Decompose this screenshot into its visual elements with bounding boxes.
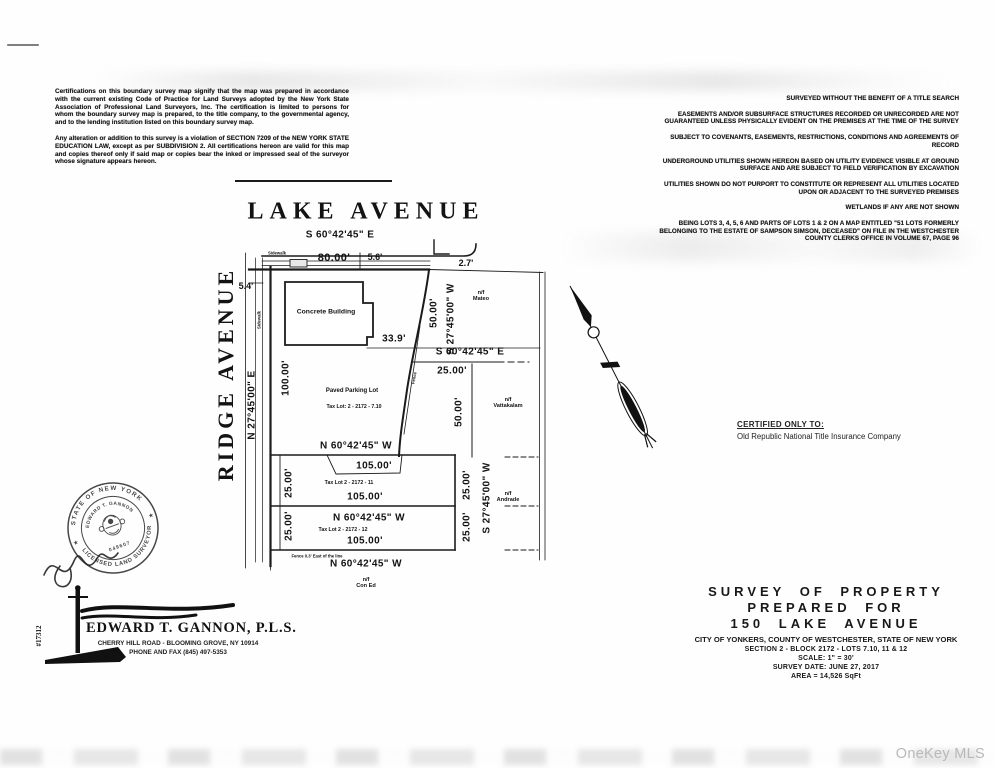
surveyor-signature — [44, 553, 118, 587]
seal-emblem-icon — [96, 511, 128, 539]
taxlot-12-label: Tax Lot 2 - 2172 - 12 — [319, 527, 368, 533]
surveyor-seal: STATE OF NEW YORK LICENSED LAND SURVEYOR… — [44, 470, 171, 586]
paved-parking-label: Paved Parking Lot — [326, 388, 378, 394]
surveyor-name: EDWARD T. GANNON, P.L.S. — [86, 620, 297, 637]
certification-paragraph-2: Any alteration or addition to this surve… — [55, 135, 349, 166]
north-arrow-icon — [563, 282, 660, 451]
seal-top-text: STATE OF NEW YORK — [61, 474, 145, 528]
dim-25-left-row2: 25.00' — [284, 511, 295, 541]
bearing-nw-row1: N 60°42'45" W — [320, 441, 392, 452]
sidewalk-label-left: Sidewalk — [257, 311, 262, 329]
dim-105-c: 105.00' — [347, 536, 383, 547]
nf-vattakalam-label: n/f Vattakalam — [493, 397, 522, 409]
dim-50-mateo: 50.00' — [429, 298, 440, 328]
north-boundary-extension — [429, 270, 543, 273]
seal-star-right-icon: ★ — [147, 512, 154, 520]
dim-25-right-row2: 25.00' — [462, 512, 473, 542]
job-number: #17312 — [35, 626, 43, 647]
certified-to-name: Old Republic National Title Insurance Co… — [737, 432, 967, 441]
dim-5-4: 5.4' — [239, 281, 254, 291]
title-line-2: PREPARED FOR — [686, 600, 966, 616]
sidewalk-label-top: Sidewalk — [268, 251, 286, 256]
bearing-se-mid: S 60°42'45" E — [436, 347, 505, 358]
onekey-mls-watermark: OneKey MLS — [896, 746, 985, 762]
survey-sheet: STATE OF NEW YORK LICENSED LAND SURVEYOR… — [0, 0, 995, 768]
title-line-6: SCALE: 1" = 30' — [686, 654, 966, 663]
bearing-sw-mateo: S 27°45'00" W — [446, 283, 457, 354]
nf-coned-name: Con Ed — [356, 583, 376, 589]
dim-50-vattakalam: 50.00' — [454, 397, 465, 427]
certified-to-heading: CERTIFIED ONLY TO: — [737, 420, 967, 429]
north-arrow-ring — [586, 325, 601, 340]
bearing-nw-row2: N 60°42'45" W — [333, 513, 405, 524]
title-line-8: AREA = 14,526 SqFt — [686, 672, 966, 681]
title-block: SURVEY OF PROPERTY PREPARED FOR 150 LAKE… — [686, 584, 966, 681]
title-line-4: CITY OF YONKERS, COUNTY OF WESTCHESTER, … — [686, 635, 966, 645]
certified-to-block: CERTIFIED ONLY TO: Old Republic National… — [737, 420, 967, 441]
title-line-3: 150 LAKE AVENUE — [686, 616, 966, 632]
dim-5-6: 5.6' — [368, 252, 383, 262]
north-arrow-tail-fill — [617, 384, 648, 434]
dim-100: 100.00' — [281, 360, 292, 396]
transit-banner-1 — [82, 605, 233, 611]
north-arrow-head — [567, 283, 596, 328]
bearing-sw-andrade: S 27°45'00" W — [482, 462, 493, 533]
corner-l-mark — [434, 240, 449, 254]
survey-notes-block: SURVEYED WITHOUT THE BENEFIT OF A TITLE … — [653, 95, 959, 251]
taxlot-710-label: Tax Lot: 2 - 2172 - 7.10 — [327, 404, 382, 410]
transit-knob — [75, 585, 81, 591]
bearing-ridge-frontage: N 27°45'00" E — [247, 370, 258, 439]
east-boundary — [399, 270, 429, 456]
bearing-nw-bottom: N 60°42'45" W — [330, 559, 402, 570]
note-being-lots: BEING LOTS 3, 4, 5, 6 AND PARTS OF LOTS … — [653, 220, 959, 243]
certification-paragraph-1: Certifications on this boundary survey m… — [55, 88, 349, 127]
nf-mateo-name: Mateo — [473, 296, 489, 302]
dim-105-b: 105.00' — [347, 492, 383, 503]
note-title-search: SURVEYED WITHOUT THE BENEFIT OF A TITLE … — [653, 95, 959, 103]
surveyor-phone: PHONE AND FAX (845) 497-5353 — [88, 649, 268, 656]
dim-25-left-row1: 25.00' — [284, 468, 295, 498]
note-wetlands: WETLANDS IF ANY ARE NOT SHOWN — [653, 204, 959, 212]
note-underground-utilities: UNDERGROUND UTILITIES SHOWN HEREON BASED… — [653, 158, 959, 173]
ridge-avenue-title: RIDGE AVENUE — [213, 267, 239, 481]
dim-105-a: 105.00' — [356, 461, 392, 472]
note-easements: EASEMENTS AND/OR SUBSURFACE STRUCTURES R… — [653, 111, 959, 126]
transit-post — [76, 589, 81, 653]
dim-25-right-row1: 25.00' — [462, 470, 473, 500]
note-utilities-shown: UTILITIES SHOWN DO NOT PURPORT TO CONSTI… — [653, 181, 959, 196]
title-line-5: SECTION 2 - BLOCK 2172 - LOTS 7.10, 11 &… — [686, 645, 966, 654]
nf-andrade-name: Andrade — [497, 497, 520, 503]
dim-25-mid: 25.00' — [437, 366, 467, 377]
note-covenants: SUBJECT TO COVENANTS, EASEMENTS, RESTRIC… — [653, 134, 959, 149]
seal-bottom-text: LICENSED LAND SURVEYOR — [80, 523, 163, 579]
lake-avenue-title: LAKE AVENUE — [248, 199, 485, 226]
surveyor-address: CHERRY HILL ROAD - BLOOMING GROVE, NY 10… — [88, 640, 268, 647]
title-line-7: SURVEY DATE: JUNE 27, 2017 — [686, 663, 966, 672]
seal-license-number: 049607 — [108, 540, 131, 553]
concrete-building-label: Concrete Building — [297, 309, 356, 316]
bearing-lake-frontage: S 60°42'45" E — [306, 230, 375, 241]
certification-block: Certifications on this boundary survey m… — [55, 88, 349, 174]
nf-mateo-label: n/f Mateo — [473, 290, 489, 302]
transit-banner-2 — [82, 615, 196, 618]
north-arrow-fork — [642, 431, 657, 447]
dim-2-7: 2.7' — [459, 258, 474, 268]
sidewalk-hatch-box — [290, 260, 307, 268]
taxlot-11-label: Tax Lot 2 - 2172 - 11 — [325, 480, 374, 486]
seal-star-left-icon: ★ — [72, 539, 79, 547]
title-line-1: SURVEY OF PROPERTY — [686, 584, 966, 600]
nf-coned-label: n/f Con Ed — [356, 577, 376, 589]
nf-vattakalam-name: Vattakalam — [493, 403, 522, 409]
nf-andrade-label: n/f Andrade — [497, 491, 520, 503]
dim-33-9: 33.9' — [382, 334, 406, 345]
north-arrow-n-glyph — [600, 355, 620, 374]
dim-80: 80.00' — [318, 252, 351, 264]
